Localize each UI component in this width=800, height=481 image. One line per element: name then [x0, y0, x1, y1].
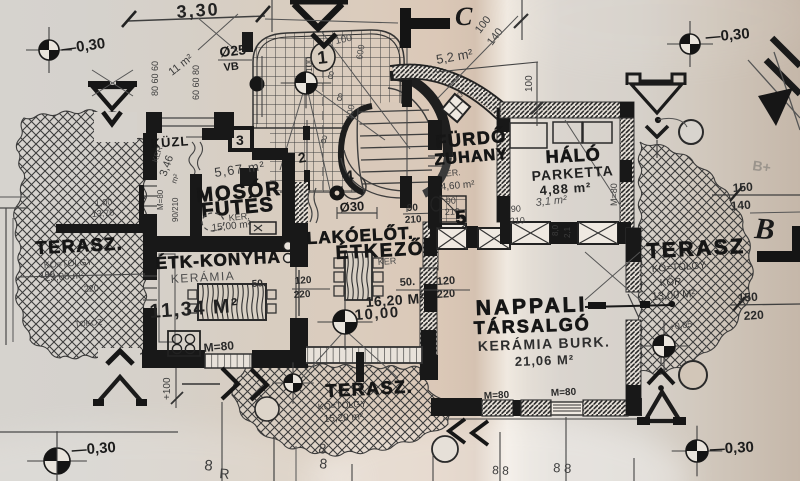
svg-text:M=80: M=80 [551, 387, 577, 399]
svg-text:90/210: 90/210 [171, 197, 180, 222]
svg-text:50.: 50. [251, 278, 266, 290]
svg-text:M=80: M=80 [156, 189, 165, 210]
svg-text:—0,30: —0,30 [709, 439, 754, 458]
svg-text:220: 220 [293, 289, 311, 301]
svg-text:90: 90 [511, 203, 522, 214]
svg-text:150: 150 [737, 290, 758, 305]
svg-text:4: 4 [344, 168, 354, 186]
svg-text:10,00: 10,00 [354, 304, 400, 324]
svg-text:M=80: M=80 [484, 390, 510, 402]
svg-text:120: 120 [436, 275, 455, 288]
svg-text:+100: +100 [162, 377, 173, 400]
svg-text:—0,30: —0,30 [71, 439, 116, 459]
svg-text:1,00: 1,00 [94, 197, 112, 208]
svg-text:2,1: 2,1 [563, 226, 572, 238]
svg-text:100: 100 [524, 75, 535, 92]
svg-text:90: 90 [407, 202, 419, 214]
svg-text:100: 100 [304, 57, 314, 72]
svg-text:8,0: 8,0 [551, 224, 560, 236]
svg-text:21,06 M²: 21,06 M² [515, 352, 575, 369]
svg-text:M=80: M=80 [203, 338, 235, 355]
svg-text:8: 8 [204, 457, 214, 475]
svg-text:90: 90 [446, 195, 457, 206]
svg-text:220: 220 [83, 283, 99, 294]
svg-text:220: 220 [743, 308, 764, 323]
svg-text:50.: 50. [399, 276, 415, 289]
svg-text:8 8: 8 8 [492, 463, 510, 478]
svg-text:210: 210 [510, 215, 526, 226]
svg-text:VB: VB [223, 60, 240, 74]
svg-text:KER: KER [377, 256, 397, 267]
svg-text:5: 5 [455, 207, 467, 229]
svg-text:Ø25: Ø25 [219, 41, 247, 60]
svg-text:1: 1 [316, 47, 328, 68]
svg-text:80 60 60: 80 60 60 [150, 61, 160, 96]
svg-text:M=80: M=80 [609, 183, 619, 206]
svg-text:150: 150 [732, 180, 753, 195]
svg-text:120: 120 [294, 275, 312, 287]
svg-text:8 8: 8 8 [553, 460, 572, 476]
svg-text:13,70: 13,70 [91, 207, 114, 219]
svg-text:3: 3 [236, 132, 244, 148]
svg-text:100: 100 [39, 269, 55, 280]
svg-text:60 60 80: 60 60 80 [191, 65, 201, 100]
svg-text:R: R [219, 465, 230, 481]
svg-text:B: B [753, 212, 776, 246]
svg-text:KER.: KER. [439, 167, 461, 179]
svg-text:C: C [455, 2, 473, 31]
svg-text:B+: B+ [752, 157, 772, 175]
svg-text:140: 140 [730, 198, 751, 213]
